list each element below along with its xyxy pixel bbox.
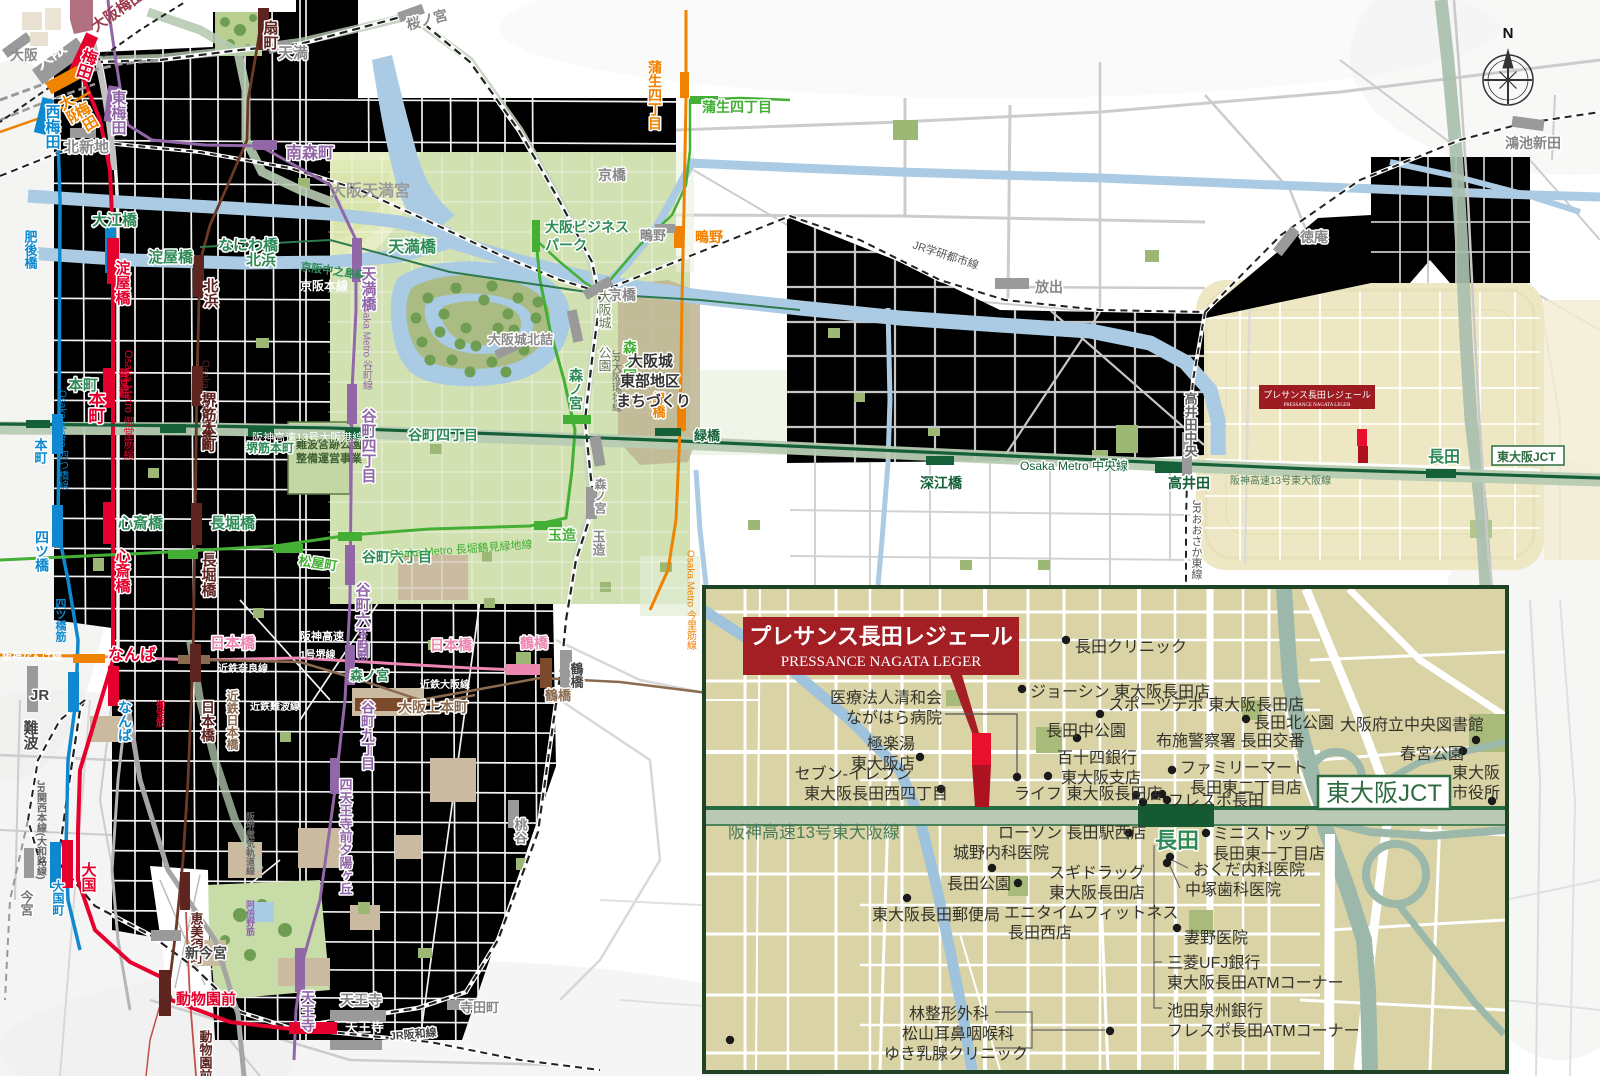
svg-text:京橋: 京橋 (608, 287, 637, 303)
svg-text:妻野医院: 妻野医院 (1184, 929, 1248, 947)
svg-text:東大阪JCT: 東大阪JCT (1326, 780, 1442, 807)
svg-text:四天王寺前夕陽ヶ丘: 四天王寺前夕陽ヶ丘 (338, 778, 353, 895)
svg-text:公園: 公園 (597, 346, 612, 372)
svg-text:大国: 大国 (80, 861, 97, 893)
svg-text:プレサンス長田レジェール: プレサンス長田レジェール (1263, 390, 1371, 400)
svg-text:北新地: 北新地 (64, 138, 109, 156)
svg-text:森ノ宮: 森ノ宮 (350, 668, 389, 683)
svg-text:本町: 本町 (86, 389, 106, 425)
svg-text:エニタイムフィットネス: エニタイムフィットネス (1004, 904, 1178, 922)
svg-text:四ツ橋: 四ツ橋 (34, 530, 50, 573)
svg-text:玉造: 玉造 (548, 527, 576, 543)
svg-text:東大阪長田店: 東大阪長田店 (1049, 884, 1145, 902)
svg-text:大阪城: 大阪城 (628, 352, 673, 370)
svg-text:鴻池新田: 鴻池新田 (1505, 135, 1561, 151)
svg-text:長田中公園: 長田中公園 (1046, 722, 1126, 740)
svg-text:JR: JR (30, 687, 49, 704)
svg-text:淀屋橋: 淀屋橋 (148, 248, 194, 266)
svg-text:PRESSANCE NAGATA LEGER: PRESSANCE NAGATA LEGER (1284, 403, 1351, 408)
svg-text:ローソン 長田駅西店: ローソン 長田駅西店 (998, 824, 1146, 842)
svg-text:深江橋: 深江橋 (920, 475, 963, 491)
svg-text:近鉄大阪線: 近鉄大阪線 (420, 678, 470, 691)
svg-text:東大阪長田郵便局: 東大阪長田郵便局 (872, 906, 1000, 924)
svg-text:西梅田: 西梅田 (44, 104, 61, 150)
svg-text:日本橋: 日本橋 (430, 637, 473, 653)
svg-text:動物園前: 動物園前 (176, 990, 236, 1008)
svg-text:春宮公園: 春宮公園 (1400, 745, 1464, 763)
svg-text:林整形外科: 林整形外科 (909, 1005, 989, 1023)
svg-text:医療法人清和会: 医療法人清和会 (830, 689, 942, 707)
svg-text:北浜: 北浜 (246, 251, 276, 269)
svg-text:阪神高速13号大阪港線: 阪神高速13号大阪港線 (252, 430, 363, 444)
svg-text:ファミリーマート: ファミリーマート (1180, 760, 1308, 777)
svg-text:阪神高速: 阪神高速 (300, 629, 344, 643)
svg-text:蒲生四丁目: 蒲生四丁目 (647, 59, 663, 131)
svg-text:天王寺: 天王寺 (340, 992, 382, 1008)
svg-text:大国町: 大国町 (51, 879, 65, 917)
svg-text:北浜: 北浜 (202, 278, 219, 309)
svg-text:近鉄日本橋: 近鉄日本橋 (225, 689, 239, 751)
svg-text:動物園前: 動物園前 (198, 1029, 213, 1076)
svg-text:谷町筋: 谷町筋 (356, 627, 370, 662)
svg-text:近鉄難波線: 近鉄難波線 (250, 700, 300, 713)
svg-text:Osaka Metro 御堂筋線: Osaka Metro 御堂筋線 (122, 350, 135, 460)
svg-text:鶴橋: 鶴橋 (520, 635, 549, 651)
svg-text:高井田中央: 高井田中央 (1183, 391, 1198, 458)
svg-text:ながはら病院: ながはら病院 (846, 709, 942, 727)
svg-text:京橋: 京橋 (598, 167, 627, 183)
svg-text:Osaka Metro 中央線: Osaka Metro 中央線 (1020, 458, 1128, 473)
svg-text:東大阪JCT: 東大阪JCT (1497, 449, 1556, 464)
svg-text:阪神高速13号東大阪線: 阪神高速13号東大阪線 (728, 823, 900, 842)
svg-text:なんば: なんば (108, 646, 156, 664)
svg-text:セブン-イレブン: セブン-イレブン (795, 764, 912, 783)
svg-text:池田泉州銀行: 池田泉州銀行 (1167, 1002, 1263, 1020)
svg-text:城野内科医院: 城野内科医院 (953, 844, 1049, 862)
svg-text:谷町四丁目: 谷町四丁目 (408, 427, 478, 443)
svg-text:天王寺: 天王寺 (300, 990, 316, 1033)
svg-text:長田: 長田 (1428, 448, 1460, 466)
svg-text:阪神高速13号東大阪線: 阪神高速13号東大阪線 (1230, 474, 1331, 487)
svg-text:緑橋: 緑橋 (694, 428, 721, 443)
svg-text:大阪上本町: 大阪上本町 (398, 699, 468, 715)
svg-text:ゆき乳腺クリニック: ゆき乳腺クリニック (884, 1045, 1028, 1063)
svg-text:玉造: 玉造 (591, 530, 606, 557)
svg-text:大阪天満宮: 大阪天満宮 (330, 181, 410, 200)
svg-text:プレサンス長田レジェール: プレサンス長田レジェール (749, 624, 1013, 649)
svg-text:本町: 本町 (68, 376, 98, 394)
svg-text:扇町: 扇町 (262, 19, 279, 51)
svg-text:心斎橋: 心斎橋 (118, 514, 164, 532)
svg-text:松山耳鼻咽喉科: 松山耳鼻咽喉科 (902, 1025, 1014, 1043)
svg-text:徳庵: 徳庵 (1299, 229, 1329, 245)
svg-text:大阪府立中央図書館: 大阪府立中央図書館 (1340, 716, 1484, 734)
svg-text:極楽湯: 極楽湯 (867, 735, 915, 753)
svg-text:フレスポ長田ATMコーナー: フレスポ長田ATMコーナー (1167, 1022, 1360, 1040)
svg-text:長堀橋: 長堀橋 (200, 552, 217, 598)
svg-text:谷町四丁目: 谷町四丁目 (360, 408, 377, 484)
svg-text:阪神なんば線: 阪神なんば線 (2, 650, 62, 663)
svg-text:大阪城: 大阪城 (597, 290, 612, 330)
svg-text:森ノ宮: 森ノ宮 (568, 367, 584, 411)
svg-text:百十四銀行: 百十四銀行 (1057, 749, 1137, 767)
svg-text:JRおおさか東線: JRおおさか東線 (1190, 500, 1203, 579)
svg-text:長堀橋: 長堀橋 (210, 514, 256, 532)
svg-text:Osaka Metro 堺筋線: Osaka Metro 堺筋線 (200, 360, 212, 450)
svg-text:N: N (1503, 25, 1514, 42)
svg-text:寺田町: 寺田町 (460, 1000, 499, 1015)
svg-text:長田公園: 長田公園 (947, 875, 1011, 893)
svg-text:Osaka Metro 今里筋線: Osaka Metro 今里筋線 (685, 550, 697, 650)
svg-text:鶴橋: 鶴橋 (545, 688, 572, 703)
svg-text:大阪城北詰: 大阪城北詰 (488, 332, 553, 347)
svg-text:なんば: なんば (117, 700, 133, 742)
svg-text:淀屋橋: 淀屋橋 (114, 259, 131, 306)
svg-text:難波: 難波 (22, 719, 39, 751)
svg-text:中塚歯科医院: 中塚歯科医院 (1185, 881, 1281, 899)
svg-text:東大阪長田ATMコーナー: 東大阪長田ATMコーナー (1167, 974, 1344, 992)
svg-text:長田: 長田 (1155, 828, 1199, 853)
svg-text:阿倍野筋: 阿倍野筋 (245, 900, 256, 937)
svg-text:三菱UFJ銀行: 三菱UFJ銀行 (1167, 954, 1260, 972)
svg-text:ライフ 東大阪長田店: ライフ 東大阪長田店 (1014, 785, 1162, 803)
svg-text:今宮: 今宮 (19, 889, 35, 916)
svg-text:南森町: 南森町 (286, 143, 334, 162)
svg-text:まちづくり: まちづくり (616, 393, 691, 410)
svg-text:東部地区: 東部地区 (620, 372, 680, 390)
svg-text:天満: 天満 (278, 44, 308, 62)
svg-text:高井田: 高井田 (1168, 475, 1210, 491)
svg-text:日本橋: 日本橋 (210, 634, 256, 652)
svg-text:大江橋: 大江橋 (92, 211, 138, 229)
svg-text:心斎橋: 心斎橋 (114, 548, 131, 594)
svg-text:京阪本線: 京阪本線 (300, 278, 348, 293)
svg-text:長田北公園: 長田北公園 (1254, 714, 1334, 732)
svg-text:鴫野: 鴫野 (695, 229, 723, 245)
svg-text:肥後橋: 肥後橋 (23, 229, 38, 270)
svg-text:市役所: 市役所 (1452, 784, 1500, 802)
svg-text:おくだ内科医院: おくだ内科医院 (1193, 861, 1305, 879)
svg-text:東梅田: 東梅田 (110, 89, 127, 136)
svg-text:長田東一丁目店: 長田東一丁目店 (1213, 845, 1325, 863)
svg-text:御堂筋: 御堂筋 (155, 699, 166, 728)
svg-text:本町: 本町 (33, 437, 48, 465)
svg-text:日本橋: 日本橋 (200, 700, 216, 743)
svg-text:東大阪: 東大阪 (1452, 764, 1500, 782)
svg-text:桃谷: 桃谷 (513, 817, 528, 845)
svg-text:阪堺電気軌道線: 阪堺電気軌道線 (245, 811, 256, 876)
svg-text:長田西店: 長田西店 (1008, 924, 1072, 942)
svg-text:鶴橋: 鶴橋 (569, 661, 584, 689)
svg-text:森ノ宮: 森ノ宮 (593, 477, 607, 514)
svg-text:東大阪長田西四丁目: 東大阪長田西四丁目 (804, 785, 948, 803)
svg-text:スギドラッグ: スギドラッグ (1049, 864, 1145, 882)
svg-text:放出: 放出 (1034, 279, 1063, 295)
svg-text:蒲生四丁目: 蒲生四丁目 (702, 99, 772, 115)
svg-text:谷町九丁目: 谷町九丁目 (360, 700, 376, 771)
svg-text:天満橋: 天満橋 (388, 237, 437, 256)
svg-text:フレスポ長田: フレスポ長田 (1168, 792, 1264, 810)
svg-text:東大阪支店: 東大阪支店 (1061, 769, 1141, 787)
svg-text:近鉄奈良線: 近鉄奈良線 (218, 662, 268, 675)
svg-text:鴫野: 鴫野 (640, 228, 666, 243)
svg-text:スポーツデポ 東大阪長田店: スポーツデポ 東大阪長田店 (1108, 695, 1304, 714)
svg-text:Osaka Metro 四つ橋線: Osaka Metro 四つ橋線 (57, 390, 69, 490)
svg-text:PRESSANCE NAGATA LEGER: PRESSANCE NAGATA LEGER (781, 654, 982, 670)
svg-text:新今宮: 新今宮 (185, 945, 227, 961)
svg-text:ミニストップ: ミニストップ (1213, 825, 1309, 843)
svg-text:長田クリニック: 長田クリニック (1075, 638, 1187, 656)
svg-text:四ツ橋筋: 四ツ橋筋 (54, 598, 68, 643)
svg-text:布施警察署 長田交番: 布施警察署 長田交番 (1156, 732, 1304, 750)
svg-text:1号堺線: 1号堺線 (300, 648, 336, 661)
svg-text:天王寺: 天王寺 (345, 1020, 384, 1035)
svg-text:Osaka Metro 谷町線: Osaka Metro 谷町線 (361, 300, 373, 390)
svg-text:パーク: パーク (545, 237, 587, 253)
svg-text:大阪ビジネス: 大阪ビジネス (545, 219, 629, 235)
